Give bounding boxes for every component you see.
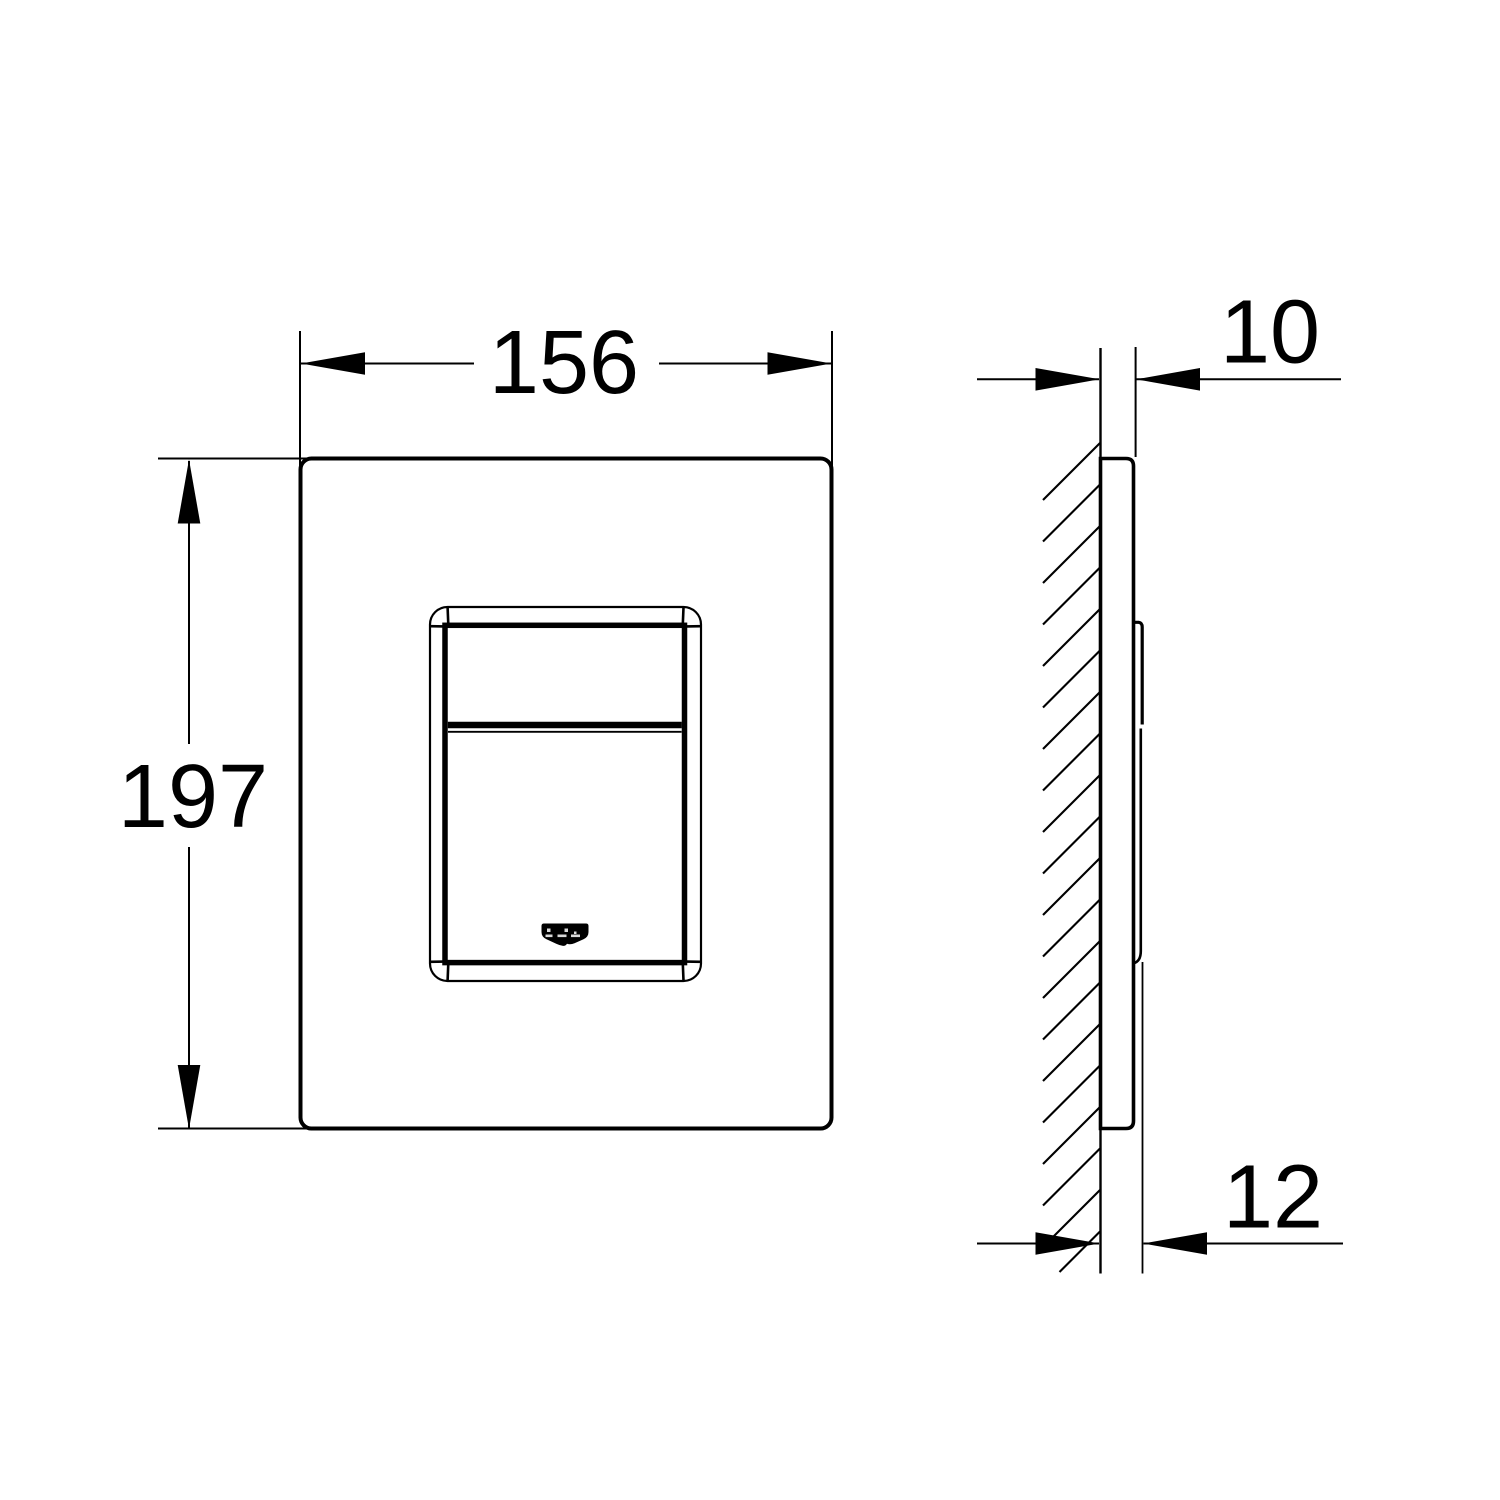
svg-text:156: 156 bbox=[489, 313, 639, 413]
svg-text:197: 197 bbox=[118, 747, 268, 847]
svg-text:12: 12 bbox=[1223, 1148, 1323, 1248]
svg-text:10: 10 bbox=[1220, 283, 1320, 383]
